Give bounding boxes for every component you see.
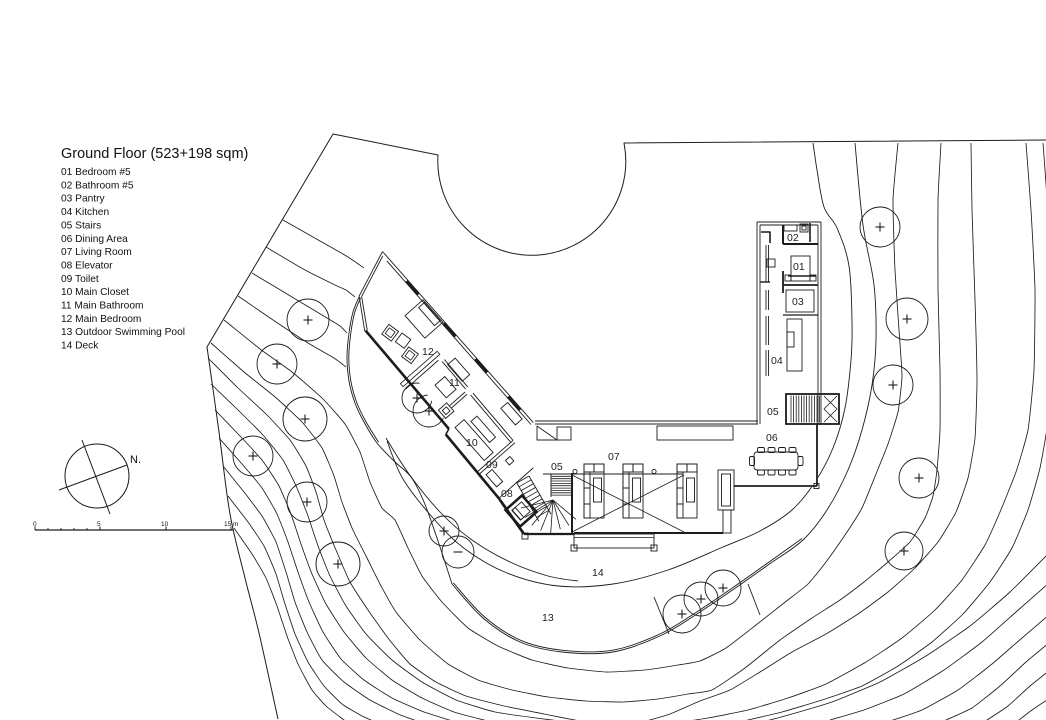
- svg-text:13 Outdoor Swimming Pool: 13 Outdoor Swimming Pool: [61, 327, 185, 338]
- svg-text:N.: N.: [130, 454, 141, 466]
- svg-text:0: 0: [33, 521, 37, 528]
- svg-text:02: 02: [787, 232, 799, 244]
- svg-text:01: 01: [793, 261, 805, 273]
- svg-text:03: 03: [792, 296, 804, 308]
- svg-text:08: 08: [501, 488, 513, 500]
- svg-text:15 m: 15 m: [224, 521, 238, 528]
- svg-text:08 Elevator: 08 Elevator: [61, 260, 113, 271]
- svg-text:10: 10: [466, 437, 478, 449]
- svg-text:05: 05: [767, 406, 779, 418]
- svg-text:07: 07: [608, 451, 620, 463]
- svg-text:06 Dining Area: 06 Dining Area: [61, 234, 128, 245]
- svg-text:12: 12: [422, 346, 434, 358]
- svg-text:04 Kitchen: 04 Kitchen: [61, 207, 109, 218]
- svg-text:11: 11: [449, 377, 460, 389]
- svg-text:05 Stairs: 05 Stairs: [61, 220, 101, 231]
- svg-text:04: 04: [771, 355, 783, 367]
- svg-text:02 Bathroom #5: 02 Bathroom #5: [61, 180, 134, 191]
- svg-text:10: 10: [161, 521, 169, 528]
- svg-text:12 Main Bedroom: 12 Main Bedroom: [61, 314, 141, 325]
- svg-text:Ground Floor (523+198 sqm): Ground Floor (523+198 sqm): [61, 146, 248, 162]
- svg-text:01 Bedroom #5: 01 Bedroom #5: [61, 167, 131, 178]
- svg-text:07 Living Room: 07 Living Room: [61, 247, 132, 258]
- svg-text:14: 14: [592, 567, 604, 579]
- svg-text:09: 09: [486, 459, 498, 471]
- svg-text:06: 06: [766, 432, 778, 444]
- svg-text:5: 5: [97, 521, 101, 528]
- svg-text:11 Main Bathroom: 11 Main Bathroom: [61, 301, 143, 312]
- svg-text:05: 05: [551, 461, 563, 473]
- svg-text:14 Deck: 14 Deck: [61, 341, 99, 352]
- svg-text:03 Pantry: 03 Pantry: [61, 194, 106, 205]
- svg-text:09 Toilet: 09 Toilet: [61, 274, 99, 285]
- svg-text:13: 13: [542, 612, 554, 624]
- svg-text:10 Main Closet: 10 Main Closet: [61, 287, 129, 298]
